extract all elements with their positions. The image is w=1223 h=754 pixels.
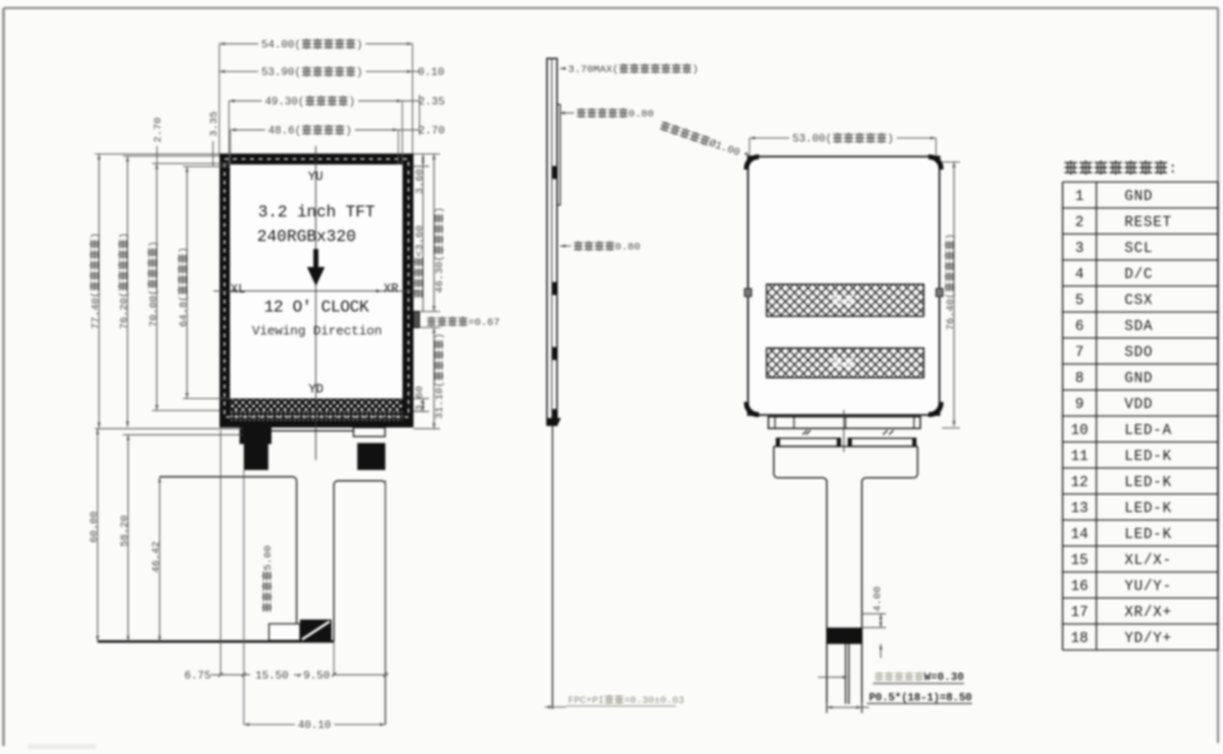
svg-text:): ) [349, 97, 356, 109]
svg-text:16: 16 [1071, 579, 1088, 595]
svg-text:70.00(: 70.00( [148, 289, 160, 327]
svg-text:YU/Y-: YU/Y- [1125, 579, 1173, 595]
svg-text:4.00: 4.00 [872, 586, 884, 611]
svg-text:0.80: 0.80 [629, 109, 654, 121]
svg-text:15.50: 15.50 [255, 671, 288, 683]
svg-text:12 O' CLOCK: 12 O' CLOCK [264, 298, 369, 317]
svg-text:P0.5*(18-1)=8.50: P0.5*(18-1)=8.50 [869, 693, 972, 705]
svg-text:17: 17 [1071, 605, 1088, 621]
svg-text:): ) [119, 233, 131, 239]
svg-text:31.10(: 31.10( [434, 381, 446, 419]
svg-text:3.70MAX(: 3.70MAX( [568, 64, 619, 76]
svg-text:): ) [356, 40, 363, 52]
svg-text:XL/X-: XL/X- [1125, 553, 1173, 569]
svg-text:1: 1 [1075, 189, 1084, 205]
svg-text:64.8(: 64.8( [178, 295, 190, 327]
svg-text:6.75: 6.75 [184, 671, 211, 683]
svg-text:48.6(: 48.6( [268, 126, 301, 138]
svg-text:46.42: 46.42 [151, 541, 163, 573]
svg-text:SCL: SCL [1125, 241, 1154, 257]
svg-text:2: 2 [1075, 215, 1084, 231]
svg-text:): ) [148, 241, 160, 247]
svg-text:8: 8 [1075, 371, 1084, 387]
svg-text:3.2 inch TFT: 3.2 inch TFT [258, 203, 375, 222]
svg-text:LED-K: LED-K [1125, 475, 1173, 491]
svg-text:SDO: SDO [1125, 345, 1154, 361]
svg-text:GND: GND [1125, 371, 1154, 387]
svg-text:=0.67: =0.67 [468, 317, 500, 329]
svg-text:LED-K: LED-K [1125, 527, 1173, 543]
svg-text:YD: YD [308, 383, 323, 397]
svg-text:7: 7 [1075, 345, 1084, 361]
svg-text:GND: GND [1125, 189, 1154, 205]
svg-text:53.90(: 53.90( [261, 67, 301, 79]
svg-text:LED-K: LED-K [1125, 449, 1173, 465]
svg-text:13: 13 [1071, 501, 1088, 517]
svg-text:9.50: 9.50 [303, 671, 330, 683]
svg-text:3: 3 [1075, 241, 1084, 257]
svg-text:6: 6 [1075, 319, 1084, 335]
svg-text:240RGBx320: 240RGBx320 [257, 227, 356, 246]
svg-text:): ) [178, 247, 190, 253]
svg-text:VDD: VDD [1125, 397, 1154, 413]
svg-text:60.00: 60.00 [89, 511, 101, 543]
svg-text:XR: XR [383, 282, 399, 296]
svg-text:CSX: CSX [1125, 293, 1154, 309]
svg-text:58.20: 58.20 [119, 515, 131, 547]
svg-text:YD/Y+: YD/Y+ [1125, 631, 1173, 647]
svg-text:54.00(: 54.00( [261, 40, 301, 52]
svg-text:4: 4 [1075, 267, 1084, 283]
svg-text:YU: YU [308, 170, 323, 184]
svg-text:): ) [345, 126, 352, 138]
svg-text:): ) [887, 134, 894, 146]
svg-text:40.10: 40.10 [298, 720, 331, 732]
svg-text:12: 12 [1071, 475, 1088, 491]
svg-text::: : [1168, 161, 1177, 178]
svg-text:): ) [90, 233, 102, 239]
svg-text:SDA: SDA [1125, 319, 1154, 335]
svg-text:76.40(: 76.40( [945, 293, 957, 331]
svg-text:3.60: 3.60 [414, 169, 426, 194]
svg-text:3.60: 3.60 [414, 386, 426, 411]
svg-text:0.80: 0.80 [615, 242, 640, 254]
svg-text:XL: XL [230, 283, 245, 297]
svg-text:3.35: 3.35 [209, 111, 221, 136]
svg-text:9: 9 [1075, 397, 1084, 413]
svg-text:14: 14 [1071, 527, 1088, 543]
svg-text:): ) [434, 207, 446, 213]
svg-text:76.20(: 76.20( [119, 292, 131, 330]
svg-text:): ) [356, 67, 363, 79]
svg-text:RESET: RESET [1125, 215, 1173, 231]
svg-text:10: 10 [1071, 423, 1088, 439]
svg-text:Viewing Direction: Viewing Direction [252, 324, 382, 339]
svg-text:): ) [692, 64, 698, 76]
svg-text:=0.30±0.03: =0.30±0.03 [624, 696, 684, 707]
svg-text:11: 11 [1071, 449, 1088, 465]
svg-text:49.30(: 49.30( [265, 97, 305, 109]
svg-text:18: 18 [1071, 631, 1088, 647]
svg-text:D/C: D/C [1125, 267, 1154, 283]
svg-text:0.10: 0.10 [418, 67, 445, 79]
svg-text:2.35: 2.35 [418, 97, 445, 109]
svg-text:<3.60: <3.60 [414, 225, 426, 257]
svg-text:77.40(: 77.40( [90, 292, 102, 330]
svg-text:LED-A: LED-A [1125, 423, 1173, 439]
svg-text:2.70: 2.70 [153, 117, 165, 142]
svg-text:LED-K: LED-K [1125, 501, 1173, 517]
svg-text:15: 15 [1071, 553, 1088, 569]
svg-text:5: 5 [1075, 293, 1084, 309]
svg-text:): ) [945, 234, 957, 240]
svg-text:53.00(: 53.00( [792, 134, 832, 146]
svg-text:2.70: 2.70 [418, 126, 445, 138]
svg-text:W=0.30: W=0.30 [924, 672, 964, 684]
svg-text:XR/X+: XR/X+ [1125, 605, 1173, 621]
svg-text:46.30(: 46.30( [434, 255, 446, 293]
svg-text:5.00: 5.00 [262, 545, 274, 570]
svg-text:FPC+PI: FPC+PI [568, 696, 604, 707]
svg-text:): ) [434, 333, 446, 339]
